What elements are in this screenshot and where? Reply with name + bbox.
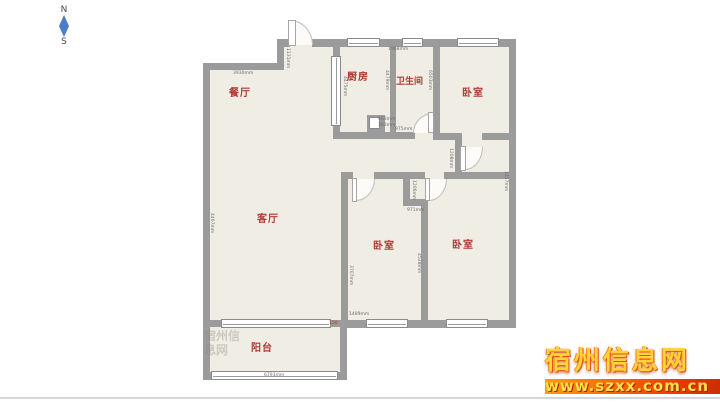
dimension-label: 1206mm xyxy=(411,180,416,200)
site-watermark: 宿州信息网 www.szxx.com.cn xyxy=(545,344,720,394)
window-bathroom xyxy=(402,38,423,47)
floor-area-dining-living xyxy=(206,66,346,324)
dimension-label: 463mm xyxy=(378,117,395,122)
door-leaf-bedroom-top-right xyxy=(460,146,466,171)
dimension-label: 971mm xyxy=(407,208,424,213)
watermark-site-name: 宿州信息网 xyxy=(545,344,720,378)
door-leaf-bedroom-bottom-right xyxy=(425,178,430,201)
wall-segment xyxy=(312,39,348,47)
bottom-divider xyxy=(0,397,720,399)
compass-south-arrow-icon xyxy=(59,26,69,37)
dimension-label: 3930mm xyxy=(233,71,253,76)
window-bedroom-top xyxy=(457,38,499,47)
room-label-bedroom-bottom-right: 卧室 xyxy=(452,236,474,251)
wall-segment xyxy=(482,133,509,140)
dimension-label: 4467mm xyxy=(209,213,214,233)
dimension-label: 1131mm xyxy=(285,48,290,68)
wall-segment xyxy=(203,63,284,70)
room-label-dining: 餐厅 xyxy=(229,84,251,99)
dimension-label: 6793mm xyxy=(264,373,284,378)
wall-segment xyxy=(433,46,440,140)
compass: N S xyxy=(52,5,76,47)
faint-watermark: 宿州信息网 xyxy=(204,329,242,357)
compass-south-label: S xyxy=(52,37,76,47)
door-leaf-bathroom xyxy=(428,112,434,133)
room-label-balcony: 阳台 xyxy=(251,339,273,354)
room-label-bedroom-top-right: 卧室 xyxy=(462,84,484,99)
wall-segment xyxy=(433,133,462,140)
window-bedroom-bottom-right xyxy=(446,319,488,328)
dimension-label: 1489mm xyxy=(349,312,369,317)
room-label-living: 客厅 xyxy=(257,210,279,225)
door-leaf-bedroom-bottom-left xyxy=(352,178,357,202)
floor-plan-canvas: N S xyxy=(0,0,720,405)
dimension-label: 4528mm xyxy=(416,253,421,273)
wall-segment xyxy=(374,172,425,179)
wall-segment xyxy=(340,320,347,380)
compass-north-label: N xyxy=(52,5,76,15)
dimension-label-red: 150 xyxy=(329,321,338,326)
room-label-kitchen: 厨房 xyxy=(347,68,369,83)
wall-segment xyxy=(422,39,458,47)
wall-segment xyxy=(421,199,428,323)
compass-north-arrow-icon xyxy=(59,15,69,26)
dimension-label: 1457mm xyxy=(503,171,508,191)
door-leaf-entrance xyxy=(288,20,296,46)
wall-segment xyxy=(341,172,348,328)
wall-segment xyxy=(390,132,415,139)
room-label-bedroom-bottom-left: 卧室 xyxy=(373,237,395,252)
sliding-door-kitchen xyxy=(331,56,341,126)
window-bedroom-bottom-left xyxy=(366,319,408,328)
wall-segment xyxy=(333,132,391,139)
wall-segment xyxy=(509,39,516,328)
room-label-bathroom: 卫生间 xyxy=(396,74,423,87)
window-kitchen xyxy=(347,38,380,47)
dimension-label: 1968mm xyxy=(388,47,408,52)
dimension-label: 3707mm xyxy=(348,265,353,285)
dimension-label: 4479mm xyxy=(384,70,389,90)
dimension-label: 975mm xyxy=(395,127,412,132)
dimension-label: 4475mm xyxy=(342,76,347,96)
dimension-label: 1208mm xyxy=(448,148,453,168)
dimension-label: 6503mm xyxy=(427,70,432,90)
watermark-site-url: www.szxx.com.cn xyxy=(545,379,720,394)
dimension-label: 363mm xyxy=(378,123,395,128)
window-living-balcony xyxy=(221,319,331,328)
